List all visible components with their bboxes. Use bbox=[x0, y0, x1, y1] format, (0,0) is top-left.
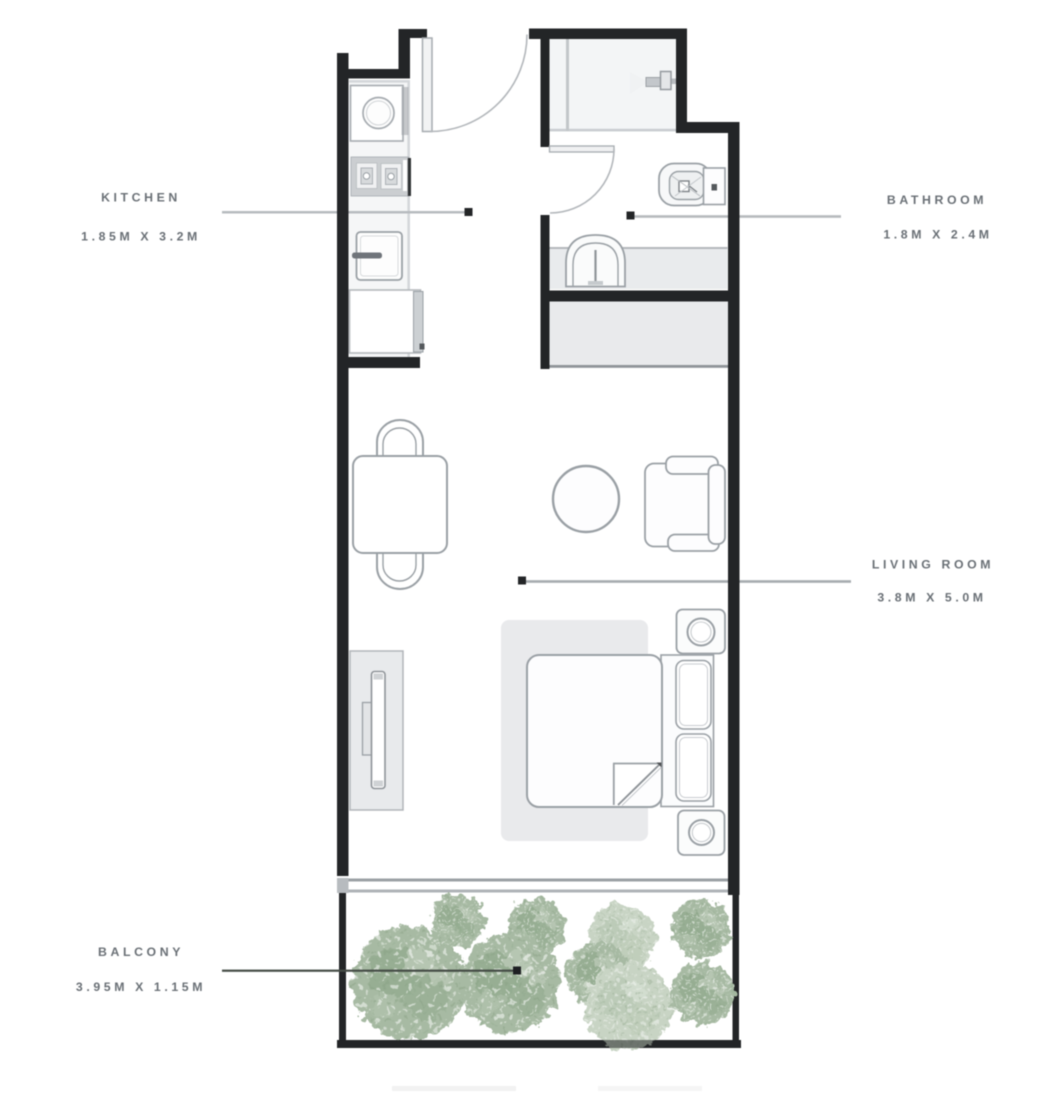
svg-text:LIVING ROOM: LIVING ROOM bbox=[872, 558, 994, 572]
svg-text:3.8M X 5.0M: 3.8M X 5.0M bbox=[877, 591, 986, 605]
svg-text:KITCHEN: KITCHEN bbox=[101, 191, 181, 205]
svg-text:BALCONY: BALCONY bbox=[98, 945, 184, 959]
svg-text:1.8M X 2.4M: 1.8M X 2.4M bbox=[883, 228, 992, 242]
svg-text:3.95M X 1.15M: 3.95M X 1.15M bbox=[76, 980, 206, 994]
svg-text:BATHROOM: BATHROOM bbox=[887, 193, 987, 207]
svg-text:1.85M X 3.2M: 1.85M X 3.2M bbox=[81, 230, 201, 244]
